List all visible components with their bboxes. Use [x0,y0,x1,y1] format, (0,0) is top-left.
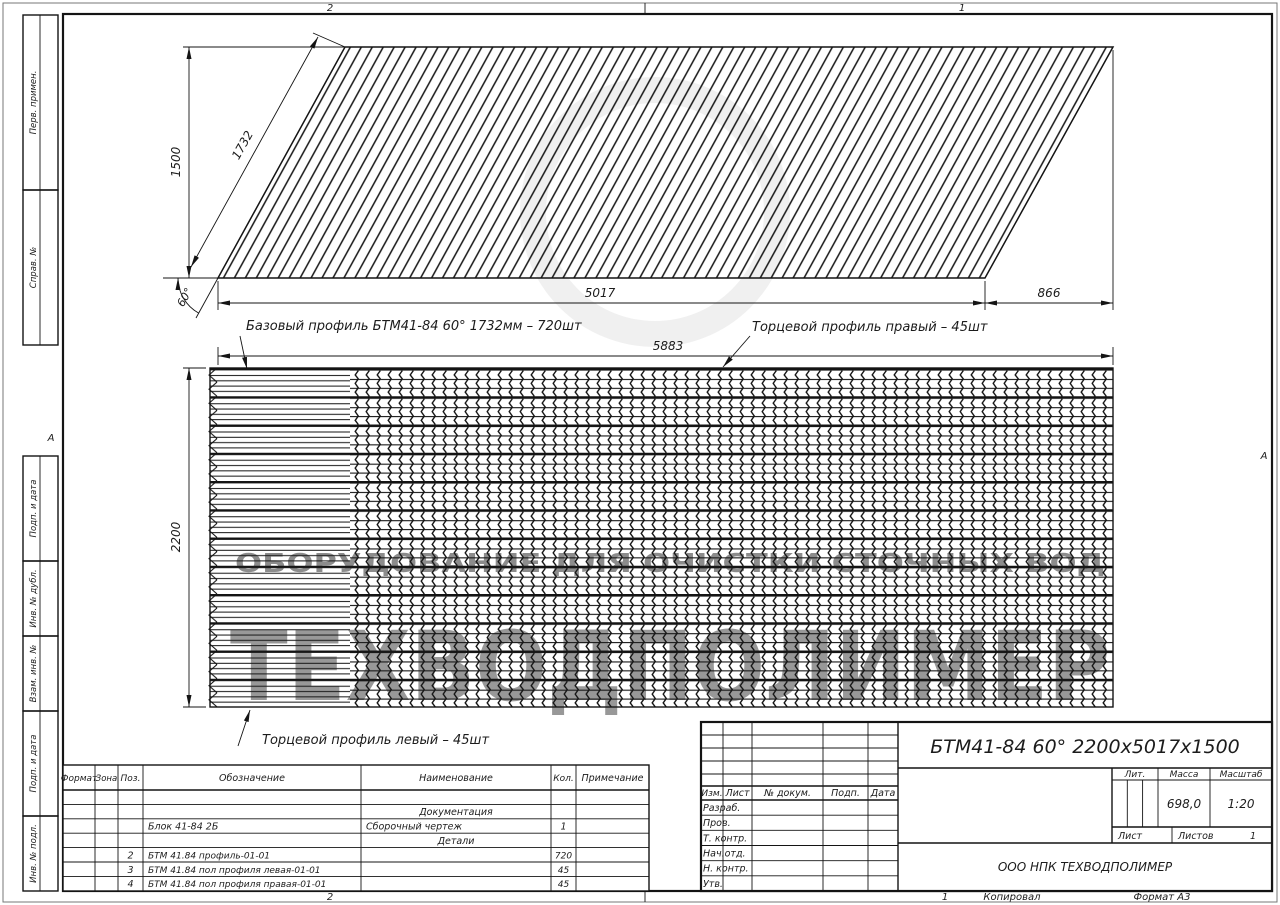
svg-text:3: 3 [127,865,133,876]
watermark-texts: ОБОРУДОВАНИЕ ДЛЯ ОЧИСТКИ СТОЧНЫХ ВОД ТЕХ… [230,549,1110,723]
margin-label-podp-data-1: Подп. и дата [29,480,39,538]
spec-row-documentation: Документация [418,807,493,818]
margin-label-vzam-inv: Взам. инв. № [29,644,39,702]
tb-sheet-label: Лист [1117,831,1143,842]
svg-text:Детали: Детали [437,836,475,847]
spec-header-designation: Обозначение [219,773,285,784]
fold-mark-top-right: 1 [959,3,965,14]
svg-text:45: 45 [558,866,570,876]
tb-col-izm: Изм. [701,789,722,799]
left-margin-boxes: Перв. примен. Справ. № Подп. и дата Инв.… [23,15,58,891]
dim-text-1500: 1500 [169,146,183,177]
base-profile-outline [218,47,1113,278]
watermark-big-text: ТЕХВОДПОЛИМЕР [230,611,1110,723]
watermark-small-text: ОБОРУДОВАНИЕ ДЛЯ ОЧИСТКИ СТОЧНЫХ ВОД [235,549,1105,579]
label-base-profile: Базовый профиль БТМ41-84 60° 1732мм – 72… [246,319,582,334]
tb-col-list: Лист [724,788,750,799]
svg-text:БТМ 41.84 пол профиля левая-01: БТМ 41.84 пол профиля левая-01-01 [148,866,321,876]
spec-header-format: Формат [61,774,98,784]
tb-col-doc: № докум. [763,788,811,799]
drawing-title: БТМ41-84 60° 2200x5017x1500 [930,736,1240,758]
spec-header-note: Примечание [581,773,643,784]
margin-label-podp-data-2: Подп. и дата [29,735,39,793]
spec-header-zona: Зона [96,774,117,784]
fold-mark-right-a: А [1260,451,1268,462]
tb-organization: ООО НПК ТЕХВОДПОЛИМЕР [998,860,1173,874]
fold-mark-bottom-right: 1 [942,892,948,903]
svg-text:720: 720 [555,851,572,861]
svg-text:2: 2 [127,850,133,861]
format-label: Формат А3 [1134,892,1191,903]
dim-text-2200: 2200 [169,521,183,552]
tb-row-n-kontr: Н. контр. [703,864,749,875]
fold-mark-bottom-left: 2 [327,892,333,903]
top-view-base-profile: 1500 1732 60° 5017 866 [163,33,1113,318]
svg-text:1: 1 [560,822,566,833]
spec-header-poz: Поз. [121,774,141,784]
copied-label: Копировал [983,892,1041,903]
tb-row-prov: Пров. [703,818,731,829]
tb-row-utv: Утв. [703,879,723,890]
spec-table: Формат Зона Поз. Обозначение Наименовани… [61,765,649,891]
margin-label-sprav-no: Справ. № [29,247,39,289]
svg-text:Сборочный чертеж: Сборочный чертеж [366,822,463,833]
tb-col-date: Дата [870,788,896,799]
svg-text:БТМ 41.84 пол профиля правая-0: БТМ 41.84 пол профиля правая-01-01 [148,880,326,890]
spec-row-details-header: Детали [437,836,475,847]
spec-header-qty: Кол. [553,774,574,784]
tb-mass-label: Масса [1170,770,1199,780]
dim-text-60: 60° [175,286,196,309]
tb-scale-value: 1:20 [1228,797,1255,811]
svg-text:Документация: Документация [418,807,493,818]
margin-label-perv-primen: Перв. примен. [29,71,39,135]
tb-col-sign: Подп. [831,788,860,799]
dim-text-5017: 5017 [585,286,616,300]
title-block: Изм. Лист № докум. Подп. Дата Разраб. Пр… [701,722,1272,891]
drawing-canvas: 2 1 2 1 Копировал Формат А3 А А Перв. пр… [0,0,1280,905]
svg-text:45: 45 [558,880,570,890]
fold-mark-left-a: А [47,433,55,444]
dim-text-866: 866 [1038,286,1061,300]
spec-header-name: Наименование [419,773,493,784]
fold-mark-top-left: 2 [327,3,333,14]
svg-text:4: 4 [127,879,133,890]
tb-scale-label: Масштаб [1220,770,1263,780]
svg-text:БТМ 41.84 профиль-01-01: БТМ 41.84 профиль-01-01 [148,851,270,861]
tb-row-t-kontr: Т. контр. [703,833,747,844]
label-end-profile-right: Торцевой профиль правый – 45шт [752,320,988,335]
drawing-sheet: 2 1 2 1 Копировал Формат А3 А А Перв. пр… [0,0,1280,905]
margin-label-inv-dubl: Инв. № дубл. [29,569,39,627]
tb-sheets-label: Листов [1177,831,1214,842]
svg-text:Блок 41-84 2Б: Блок 41-84 2Б [148,822,219,833]
dim-text-5883: 5883 [653,339,684,353]
margin-label-inv-podl: Инв. № подл. [29,824,39,883]
label-end-profile-left: Торцевой профиль левый – 45шт [262,733,489,748]
tb-row-razrab: Разраб. [703,803,740,814]
tb-lit-label: Лит. [1124,770,1146,780]
tb-row-nach-otd: Нач.отд. [703,849,746,860]
tb-sheets-value: 1 [1250,831,1256,842]
tb-mass-value: 698,0 [1167,797,1202,811]
